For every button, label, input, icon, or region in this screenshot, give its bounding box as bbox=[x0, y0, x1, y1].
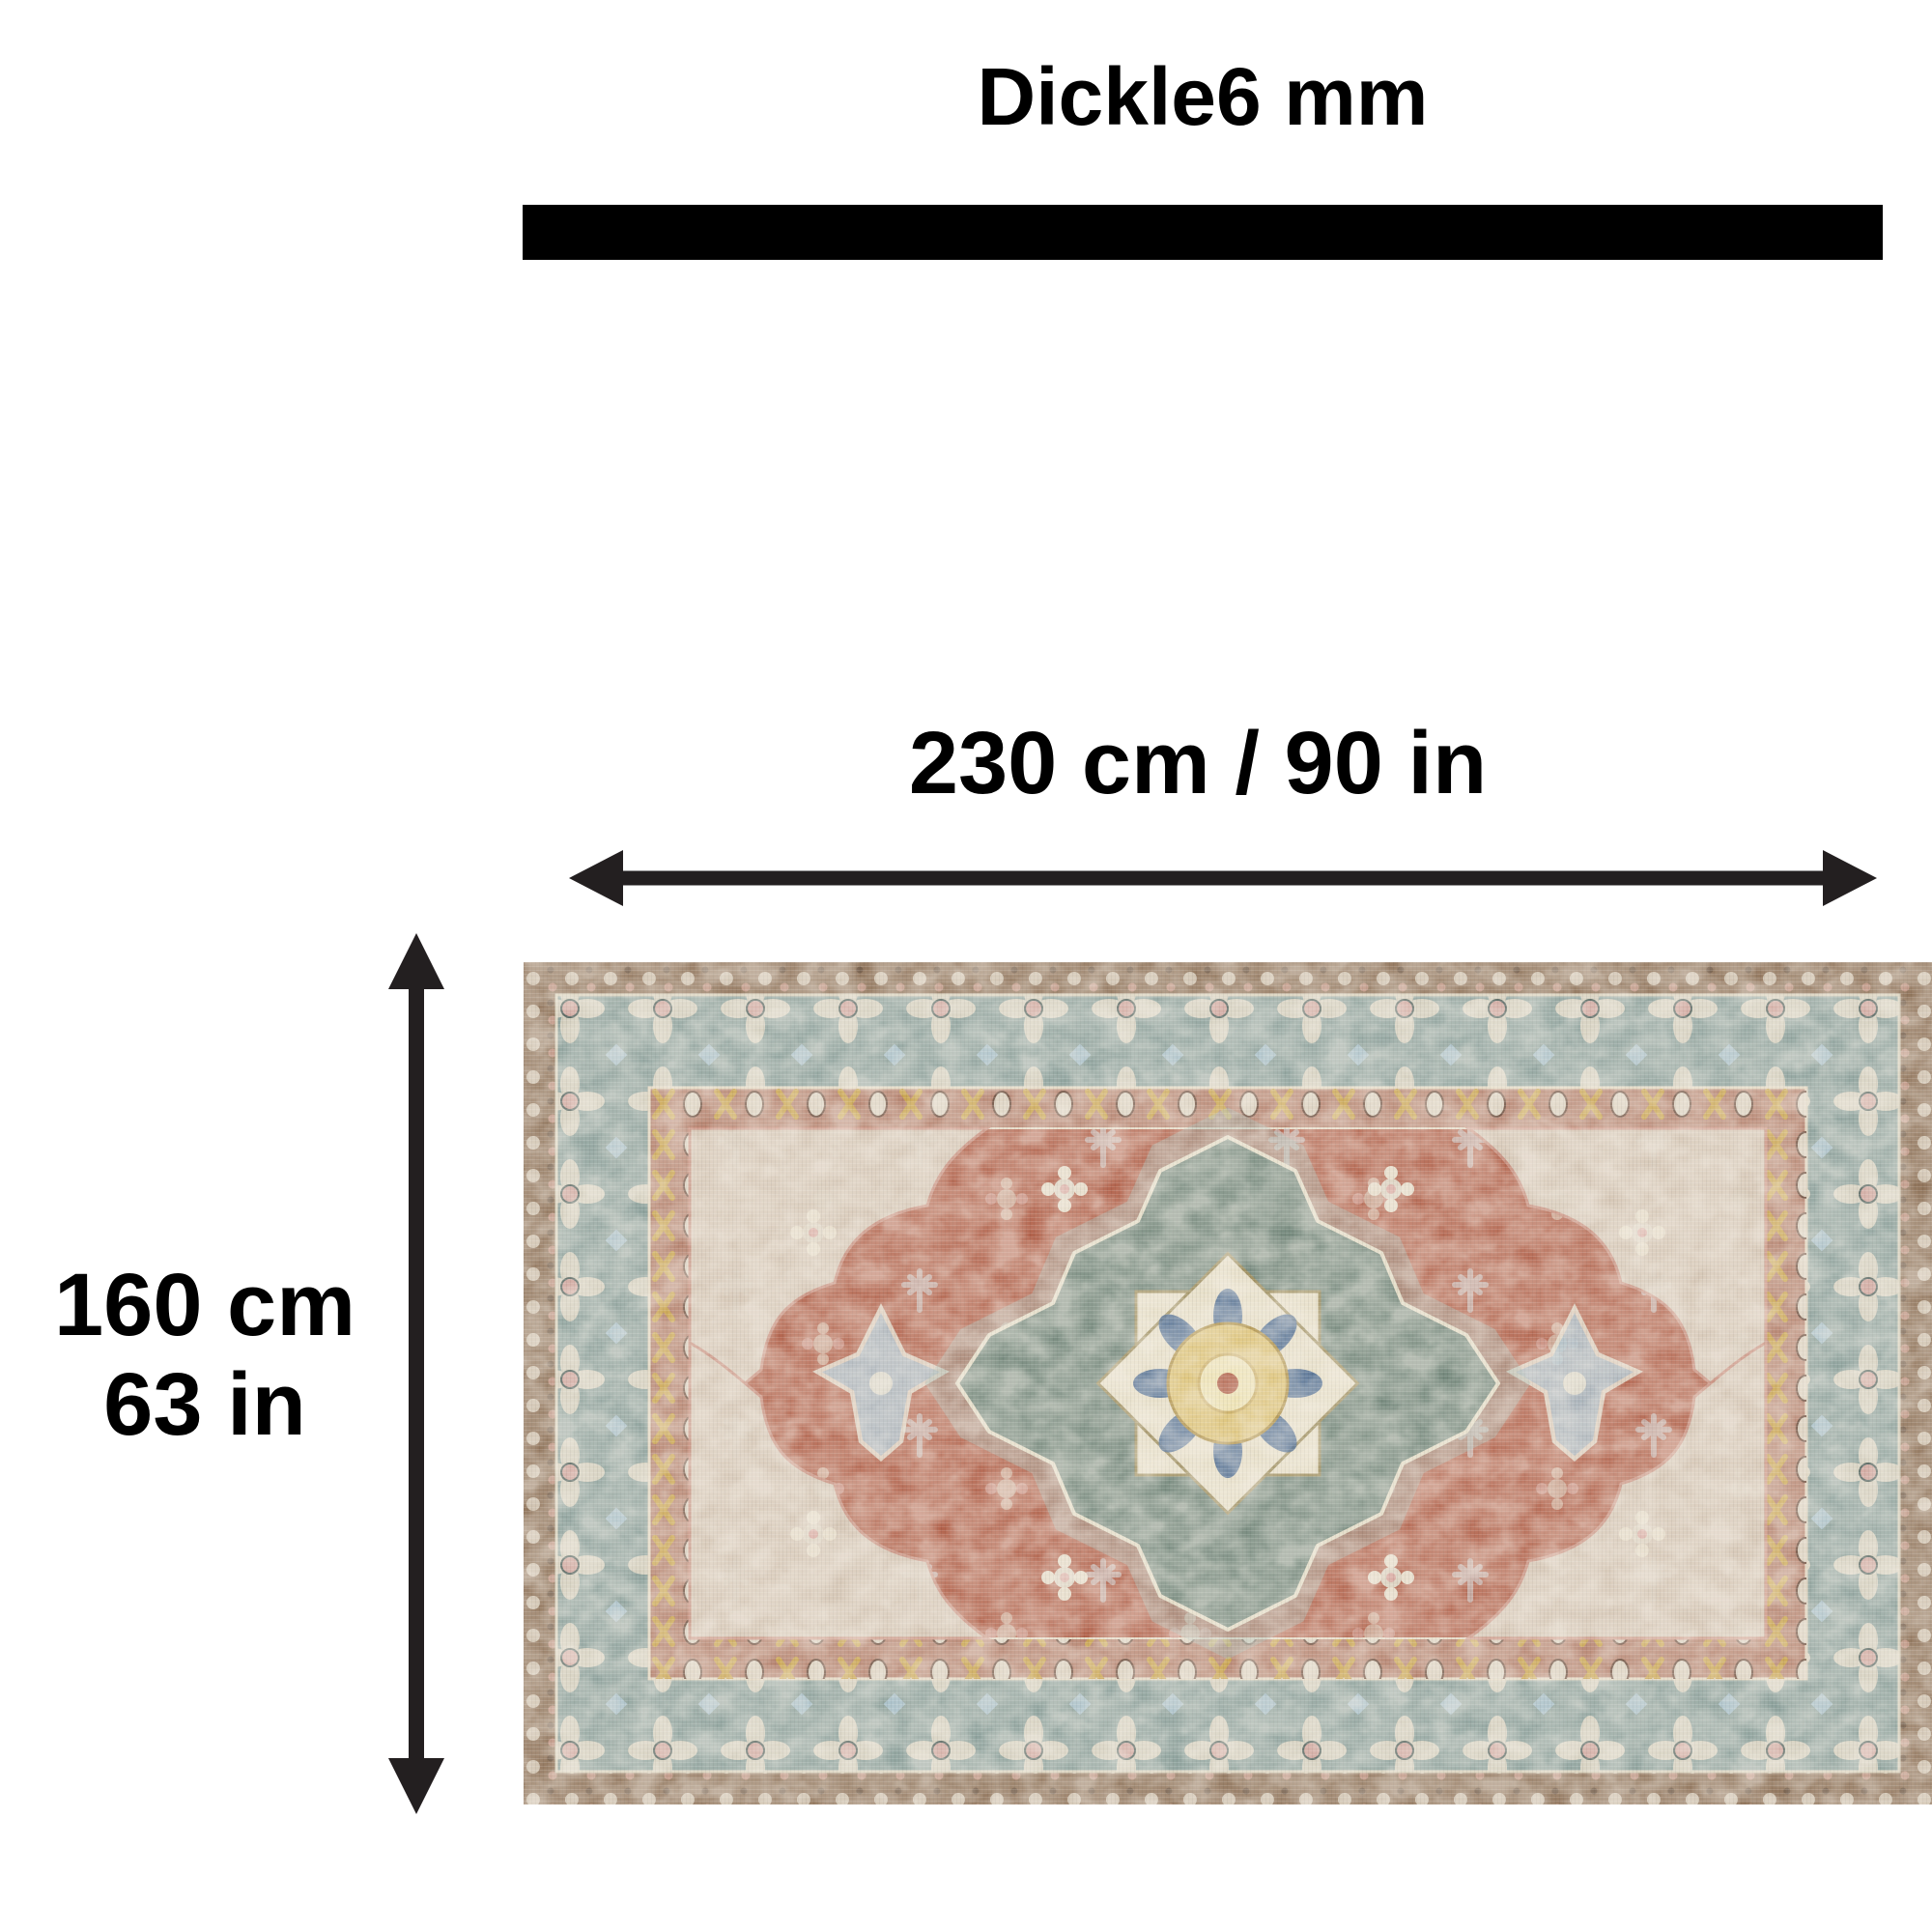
product-dimension-diagram: Dickle6 mm 230 cm / 90 in 160 cm 63 in bbox=[0, 0, 1932, 1932]
rug-wear-texture bbox=[524, 962, 1932, 1804]
arrowhead-left-icon bbox=[569, 850, 623, 906]
height-dimension-arrow bbox=[388, 933, 444, 1814]
thickness-bar bbox=[523, 205, 1883, 260]
arrowhead-right-icon bbox=[1823, 850, 1877, 906]
rug-image bbox=[524, 962, 1932, 1804]
arrowhead-up-icon bbox=[388, 933, 444, 989]
width-dimension-arrow bbox=[569, 850, 1877, 906]
arrowhead-down-icon bbox=[388, 1758, 444, 1814]
